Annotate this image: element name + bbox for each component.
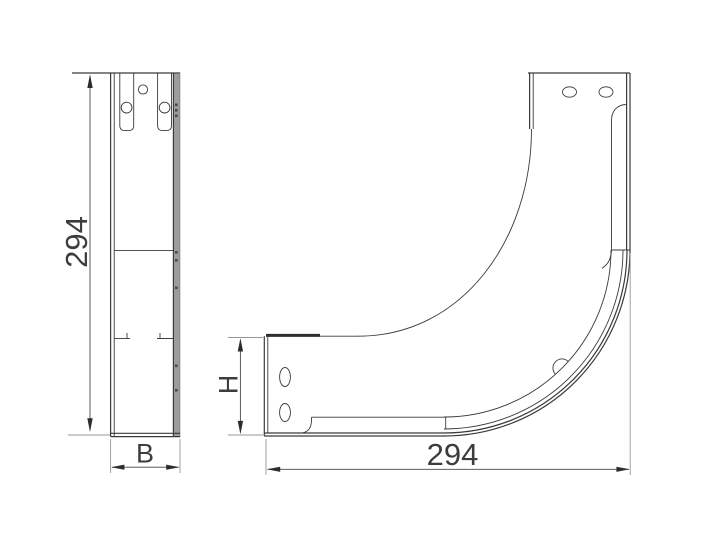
top-flange-slot-1 [563,87,577,97]
dim-label-side-height: H [214,375,244,395]
side-length-dimension: 294 [266,253,630,475]
inner-radius-curve [358,129,532,336]
rail-arc-outer [444,250,623,429]
rail-dimple [553,359,568,374]
side-height-dimension: H [214,338,264,436]
right-tab-bolt-hole [159,102,170,113]
side-view [264,73,630,436]
dim-arrow-up [87,74,92,88]
front-height-dimension: 294 [59,74,94,432]
dim-arrow-right [616,467,629,472]
dim-arrow-left [111,465,124,470]
side-rail-top-jog [612,105,626,251]
dim-arrow-right [166,465,179,470]
bottom-flange-slot-2 [280,404,291,422]
rail-arc-inner [444,250,611,417]
left-tab-bolt-hole [121,102,132,113]
outer-arc-second [444,250,627,433]
dim-arrow-down [87,418,92,432]
dim-label-front-width: B [136,439,154,469]
technical-drawing-canvas: 294 B [0,0,717,547]
front-slot-marks [114,333,173,339]
front-side-rail [173,74,179,437]
dim-arrow-left [267,467,280,472]
bottom-rail-step [303,417,312,433]
dim-arrow-down [238,421,243,434]
top-center-hole [138,85,147,94]
top-flange-slot-2 [599,87,613,97]
riser-bend-drawing: 294 B [0,0,717,547]
bottom-flange-slot-1 [280,368,291,387]
dim-arrow-up [238,338,243,351]
dim-label-front-height: 294 [59,216,94,268]
dim-label-side-length: 294 [427,437,479,472]
front-width-dimension: B [111,439,180,474]
